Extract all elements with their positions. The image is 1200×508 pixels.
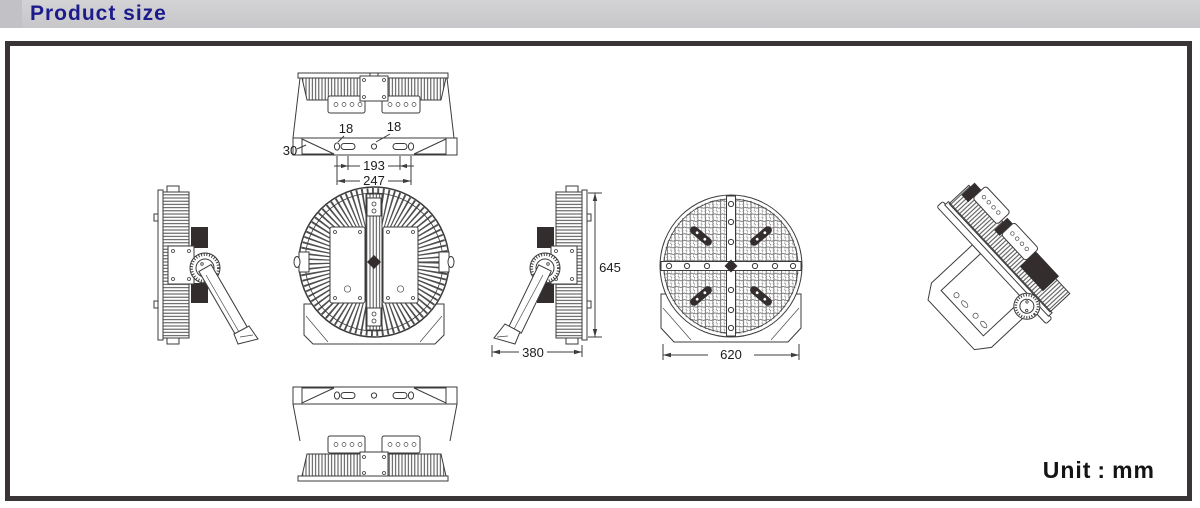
- page-title: Product size: [30, 0, 167, 28]
- drawing-frame: 18 18 193 247 30: [5, 41, 1192, 501]
- dim-label-380: 380: [522, 345, 544, 360]
- isometric-view: [886, 173, 1083, 372]
- unit-value: mm: [1112, 457, 1155, 483]
- dim-label-247: 247: [363, 173, 385, 188]
- dim-label-645: 645: [599, 260, 621, 275]
- technical-drawing: 18 18 193 247 30: [10, 46, 1187, 496]
- header-bar: Product size: [0, 0, 1200, 28]
- dim-label-193: 193: [363, 158, 385, 173]
- unit-separator: :: [1091, 457, 1112, 483]
- dim-label-30: 30: [283, 143, 297, 158]
- top-view: 18 18 193 247 30: [283, 73, 457, 188]
- rear-view: [294, 187, 454, 344]
- dim-380: 380: [492, 345, 582, 360]
- bottom-view: [293, 387, 457, 481]
- dim-label-620: 620: [720, 347, 742, 362]
- dim-label-18-left: 18: [339, 121, 353, 136]
- dim-193: 193: [334, 156, 414, 173]
- dim-645: 645: [588, 193, 621, 337]
- dim-620: 620: [663, 344, 799, 362]
- right-side-view: 645 380: [492, 186, 621, 360]
- unit-label: Unit:mm: [1043, 457, 1155, 484]
- unit-label-text: Unit: [1043, 457, 1092, 483]
- header-left-cap: [0, 0, 22, 28]
- left-side-view: [154, 186, 258, 344]
- front-view: 620: [660, 195, 802, 362]
- dim-label-18-right: 18: [387, 119, 401, 134]
